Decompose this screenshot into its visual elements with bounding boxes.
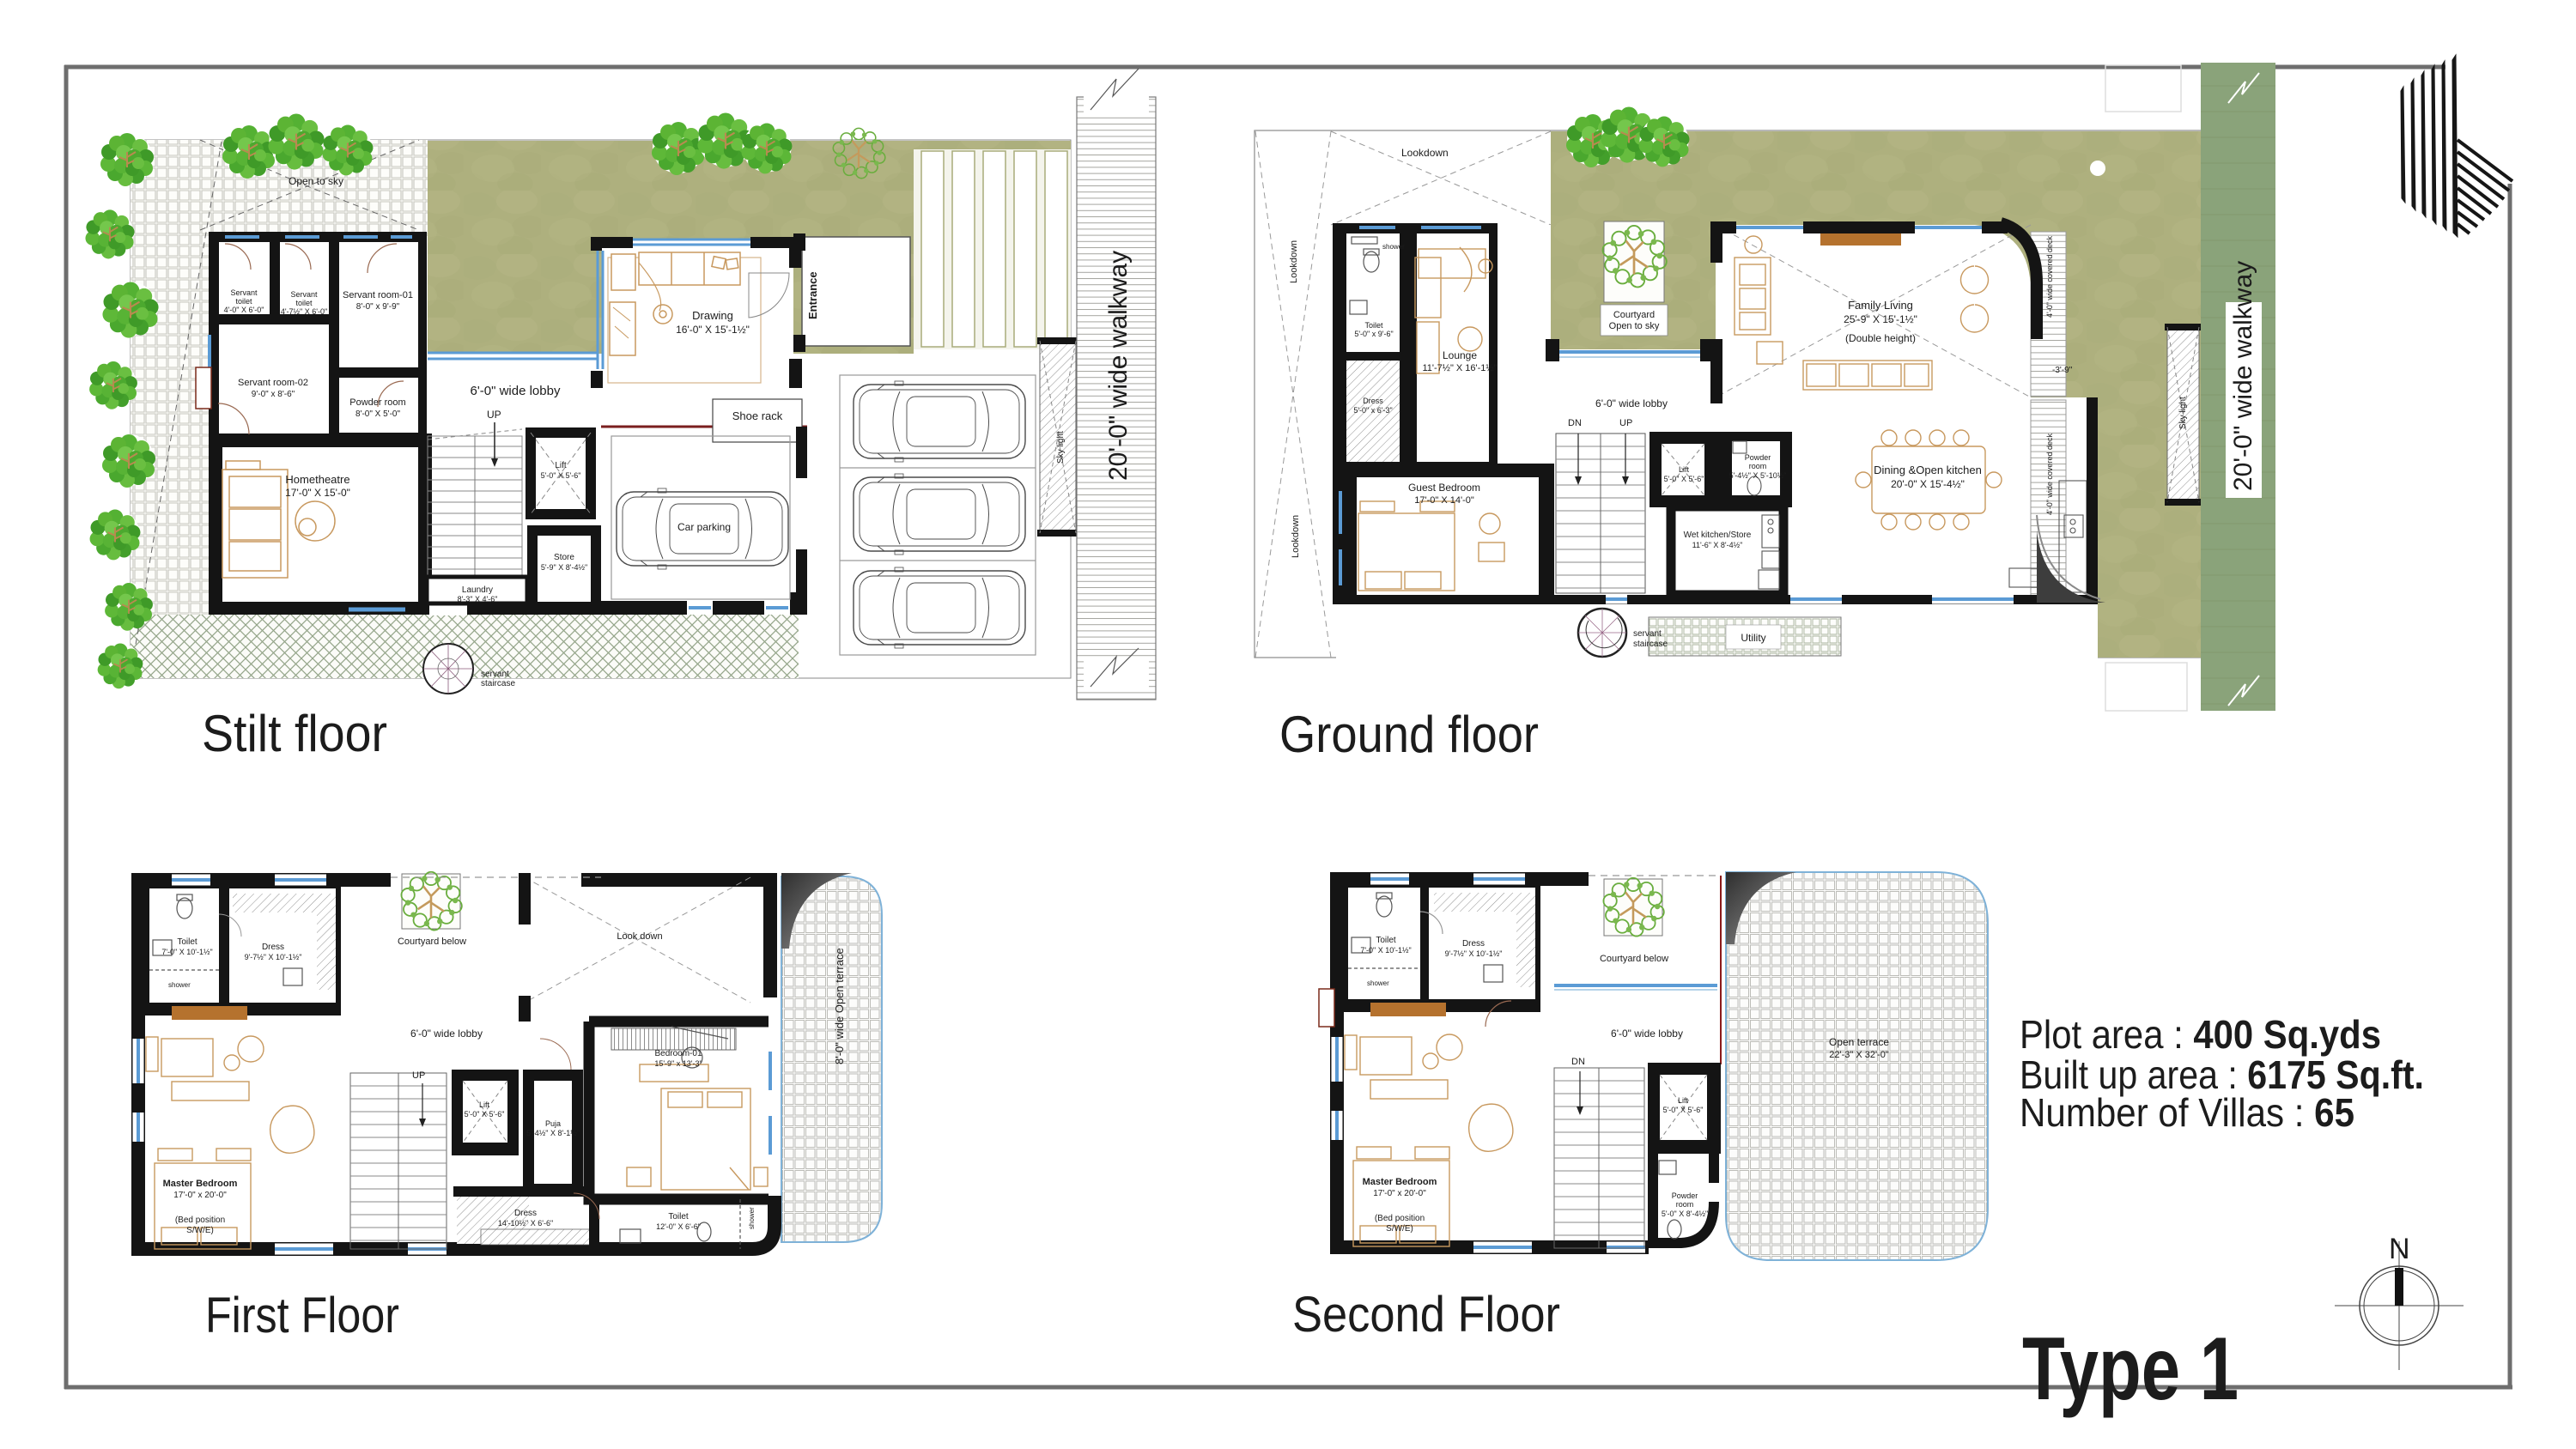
svg-text:Lift: Lift <box>479 1100 490 1109</box>
svg-text:Open to sky: Open to sky <box>289 175 343 187</box>
svg-text:Shoe rack: Shoe rack <box>732 409 783 422</box>
svg-text:servant: servant <box>1633 629 1662 639</box>
svg-text:Look down: Look down <box>617 931 662 942</box>
svg-text:11'-6" X 8'-4½": 11'-6" X 8'-4½" <box>1692 541 1743 549</box>
svg-text:Master Bedroom: Master Bedroom <box>163 1179 238 1189</box>
svg-text:Guest Bedroom: Guest Bedroom <box>1408 482 1480 494</box>
svg-text:Open to sky: Open to sky <box>1609 321 1660 331</box>
svg-text:Laundry: Laundry <box>462 585 493 595</box>
svg-text:shower: shower <box>168 981 191 989</box>
svg-text:Puja: Puja <box>545 1119 561 1128</box>
svg-text:17'-0" x 20'-0": 17'-0" x 20'-0" <box>173 1191 227 1200</box>
svg-text:9'-7½" X 10'-1½": 9'-7½" X 10'-1½" <box>245 953 302 961</box>
svg-text:Master Bedroom: Master Bedroom <box>1363 1177 1437 1187</box>
svg-text:Stilt floor: Stilt floor <box>202 705 387 762</box>
svg-text:5'-0" x 9'-6": 5'-0" x 9'-6" <box>1354 330 1393 338</box>
svg-text:toilet: toilet <box>235 297 252 306</box>
svg-text:toilet: toilet <box>295 299 313 307</box>
svg-text:4'-0" wide covered deck: 4'-0" wide covered deck <box>2045 433 2054 515</box>
svg-text:Drawing: Drawing <box>692 309 733 322</box>
svg-text:22'-3" X 32'-0": 22'-3" X 32'-0" <box>1829 1050 1889 1060</box>
svg-text:(Double height): (Double height) <box>1845 332 1916 344</box>
svg-text:Plot area : 400 Sq.yds: Plot area : 400 Sq.yds <box>2020 1012 2381 1057</box>
svg-text:Wet kitchen/Store: Wet kitchen/Store <box>1684 530 1752 540</box>
svg-text:Servant room-01: Servant room-01 <box>343 290 413 300</box>
svg-text:N: N <box>2389 1233 2410 1265</box>
svg-text:Toilet: Toilet <box>1364 321 1383 330</box>
svg-text:(Bed position: (Bed position <box>175 1216 225 1225</box>
svg-text:8'-0" wide Open terrace: 8'-0" wide Open terrace <box>833 948 846 1064</box>
svg-text:Sky light: Sky light <box>1056 431 1066 464</box>
svg-text:6'-0" wide lobby: 6'-0" wide lobby <box>1595 397 1668 409</box>
svg-text:12'-0" X 6'-6": 12'-0" X 6'-6" <box>656 1222 701 1231</box>
svg-text:15'-9" x 13'-3": 15'-9" x 13'-3" <box>654 1059 702 1068</box>
svg-text:Utility: Utility <box>1741 632 1765 644</box>
svg-text:Second Floor: Second Floor <box>1292 1287 1560 1343</box>
svg-text:Powder room: Powder room <box>349 397 405 408</box>
svg-text:Lookdown: Lookdown <box>1289 240 1299 283</box>
svg-text:17'-0" X 14'-0": 17'-0" X 14'-0" <box>1414 495 1474 506</box>
svg-text:staircase: staircase <box>1633 640 1668 649</box>
svg-text:Dress: Dress <box>514 1209 537 1218</box>
svg-text:7'-0" X 10'-1½": 7'-0" X 10'-1½" <box>1360 946 1411 955</box>
svg-text:6'-0" wide lobby: 6'-0" wide lobby <box>471 384 561 398</box>
svg-text:16'-0" X 15'-1½": 16'-0" X 15'-1½" <box>676 324 750 336</box>
svg-text:8'-3" X 4'-6": 8'-3" X 4'-6" <box>458 595 498 603</box>
svg-text:25'-9" X 15'-1½": 25'-9" X 15'-1½" <box>1844 313 1917 325</box>
svg-text:5'-0" X 5'-6": 5'-0" X 5'-6" <box>541 471 581 480</box>
svg-text:17'-0" X 15'-0": 17'-0" X 15'-0" <box>285 487 350 499</box>
svg-text:Lift: Lift <box>1678 1096 1689 1105</box>
svg-text:Car parking: Car parking <box>677 521 731 533</box>
svg-text:Bedroom-01: Bedroom-01 <box>654 1049 702 1058</box>
svg-text:14'-10½" X 6'-6": 14'-10½" X 6'-6" <box>498 1219 553 1228</box>
svg-text:shower: shower <box>1367 979 1389 987</box>
svg-text:5'-0" X 5'-6": 5'-0" X 5'-6" <box>1664 475 1704 483</box>
svg-text:S/W/E): S/W/E) <box>1386 1224 1413 1234</box>
svg-text:Type 1: Type 1 <box>2022 1319 2239 1419</box>
svg-text:Family Living: Family Living <box>1848 299 1913 312</box>
svg-text:20'-0" X 15'-4½": 20'-0" X 15'-4½" <box>1891 478 1965 490</box>
svg-text:(Bed position: (Bed position <box>1375 1214 1425 1223</box>
svg-text:5'-4½" X 5'-10½": 5'-4½" X 5'-10½" <box>1729 471 1787 480</box>
svg-text:UP: UP <box>412 1070 425 1081</box>
svg-text:Dress: Dress <box>1462 939 1485 949</box>
svg-text:Toilet: Toilet <box>1376 936 1396 945</box>
svg-text:Powder: Powder <box>1745 453 1771 462</box>
svg-text:7'-0" X 10'-1½": 7'-0" X 10'-1½" <box>161 948 212 956</box>
svg-text:Toilet: Toilet <box>177 937 197 947</box>
svg-text:5'-0" x 6'-3": 5'-0" x 6'-3" <box>1353 406 1392 415</box>
svg-text:Lift: Lift <box>555 461 567 470</box>
svg-text:11'-7½" X 16'-1½": 11'-7½" X 16'-1½" <box>1422 363 1497 373</box>
svg-text:4'-0" wide covered deck: 4'-0" wide covered deck <box>2045 236 2054 318</box>
svg-text:Entrance: Entrance <box>806 271 819 319</box>
svg-text:8'-0" X 5'-0": 8'-0" X 5'-0" <box>355 409 401 419</box>
svg-text:-3'-9": -3'-9" <box>2052 366 2073 375</box>
svg-text:17'-0" x 20'-0": 17'-0" x 20'-0" <box>1373 1189 1426 1198</box>
svg-text:UP: UP <box>487 409 501 421</box>
svg-text:Courtyard: Courtyard <box>1613 310 1655 320</box>
svg-text:Hometheatre: Hometheatre <box>285 473 349 486</box>
svg-text:room: room <box>1676 1200 1694 1209</box>
svg-text:DN: DN <box>1568 418 1582 428</box>
svg-text:4'-7½" X 6'-0": 4'-7½" X 6'-0" <box>281 307 327 316</box>
svg-text:First Floor: First Floor <box>205 1288 399 1343</box>
svg-text:4'-0" X 6'-0": 4'-0" X 6'-0" <box>224 306 264 314</box>
svg-text:Open terrace: Open terrace <box>1829 1036 1889 1048</box>
svg-text:6'-0" wide lobby: 6'-0" wide lobby <box>410 1028 483 1040</box>
svg-text:room: room <box>1749 462 1767 470</box>
svg-text:UP: UP <box>1619 418 1632 428</box>
svg-text:9'-0" x 8'-6": 9'-0" x 8'-6" <box>252 390 295 399</box>
svg-text:Servant room-02: Servant room-02 <box>238 378 308 388</box>
svg-text:20'-0" wide walkway: 20'-0" wide walkway <box>1104 251 1133 481</box>
svg-text:staircase: staircase <box>481 679 515 688</box>
svg-text:shower: shower <box>1382 243 1405 251</box>
svg-text:Dining &Open kitchen: Dining &Open kitchen <box>1874 464 1982 476</box>
svg-text:Lookdown: Lookdown <box>1291 515 1301 558</box>
svg-text:6'-0" wide lobby: 6'-0" wide lobby <box>1611 1028 1683 1040</box>
svg-text:Lookdown: Lookdown <box>1401 147 1449 159</box>
svg-text:5'-0" X 5'-6": 5'-0" X 5'-6" <box>465 1110 505 1119</box>
svg-text:Dress: Dress <box>262 943 284 952</box>
svg-text:Servant: Servant <box>230 288 258 297</box>
svg-text:Store: Store <box>554 553 574 562</box>
svg-text:shower: shower <box>748 1207 756 1229</box>
svg-text:Ground floor: Ground floor <box>1279 706 1539 763</box>
svg-text:Dress: Dress <box>1363 397 1383 405</box>
svg-text:Powder: Powder <box>1672 1191 1698 1200</box>
svg-text:5'-0" X 8'-4½": 5'-0" X 8'-4½" <box>1662 1210 1708 1218</box>
svg-text:Toilet: Toilet <box>668 1212 689 1222</box>
svg-text:5'-0" X 5'-6": 5'-0" X 5'-6" <box>1663 1106 1704 1114</box>
svg-text:Courtyard below: Courtyard below <box>1600 954 1668 964</box>
svg-text:DN: DN <box>1571 1057 1585 1067</box>
svg-text:5'-4½" X 8'-1½": 5'-4½" X 8'-1½" <box>526 1129 580 1137</box>
svg-text:Sky light: Sky light <box>2178 397 2188 429</box>
svg-text:8'-0" x 9'-9": 8'-0" x 9'-9" <box>356 302 400 312</box>
svg-text:5'-9" X 8'-4½": 5'-9" X 8'-4½" <box>541 563 587 572</box>
svg-text:Servant: Servant <box>290 290 318 299</box>
svg-text:9'-7½" X 10'-1½": 9'-7½" X 10'-1½" <box>1445 949 1503 958</box>
svg-text:servant: servant <box>481 670 509 679</box>
svg-text:Courtyard below: Courtyard below <box>398 937 466 947</box>
svg-text:Lounge: Lounge <box>1443 349 1477 361</box>
svg-text:Lift: Lift <box>1679 465 1690 474</box>
svg-text:Number of Villas : 65: Number of Villas : 65 <box>2020 1090 2354 1135</box>
svg-text:S/W/E): S/W/E) <box>186 1226 214 1235</box>
svg-text:20'-0" wide walkway: 20'-0" wide walkway <box>2229 261 2257 491</box>
